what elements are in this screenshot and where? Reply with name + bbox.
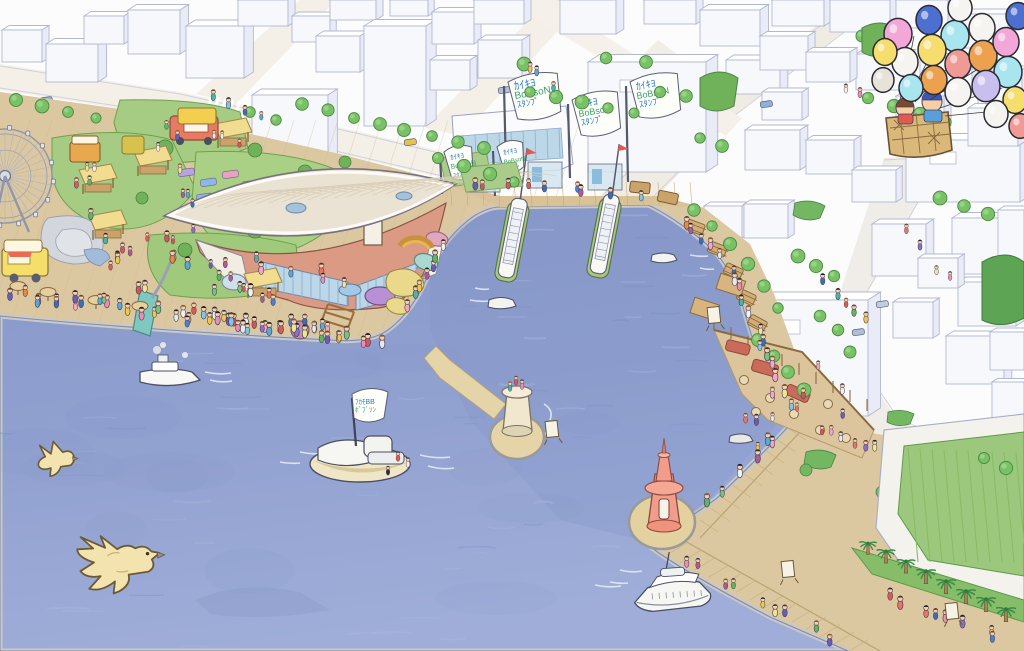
svg-text:ﾎﾞﾌﾞｿﾝ: ﾎﾞﾌﾞｿﾝ: [355, 406, 376, 414]
svg-text:ﾌｶﾓBB: ﾌｶﾓBB: [355, 398, 375, 406]
